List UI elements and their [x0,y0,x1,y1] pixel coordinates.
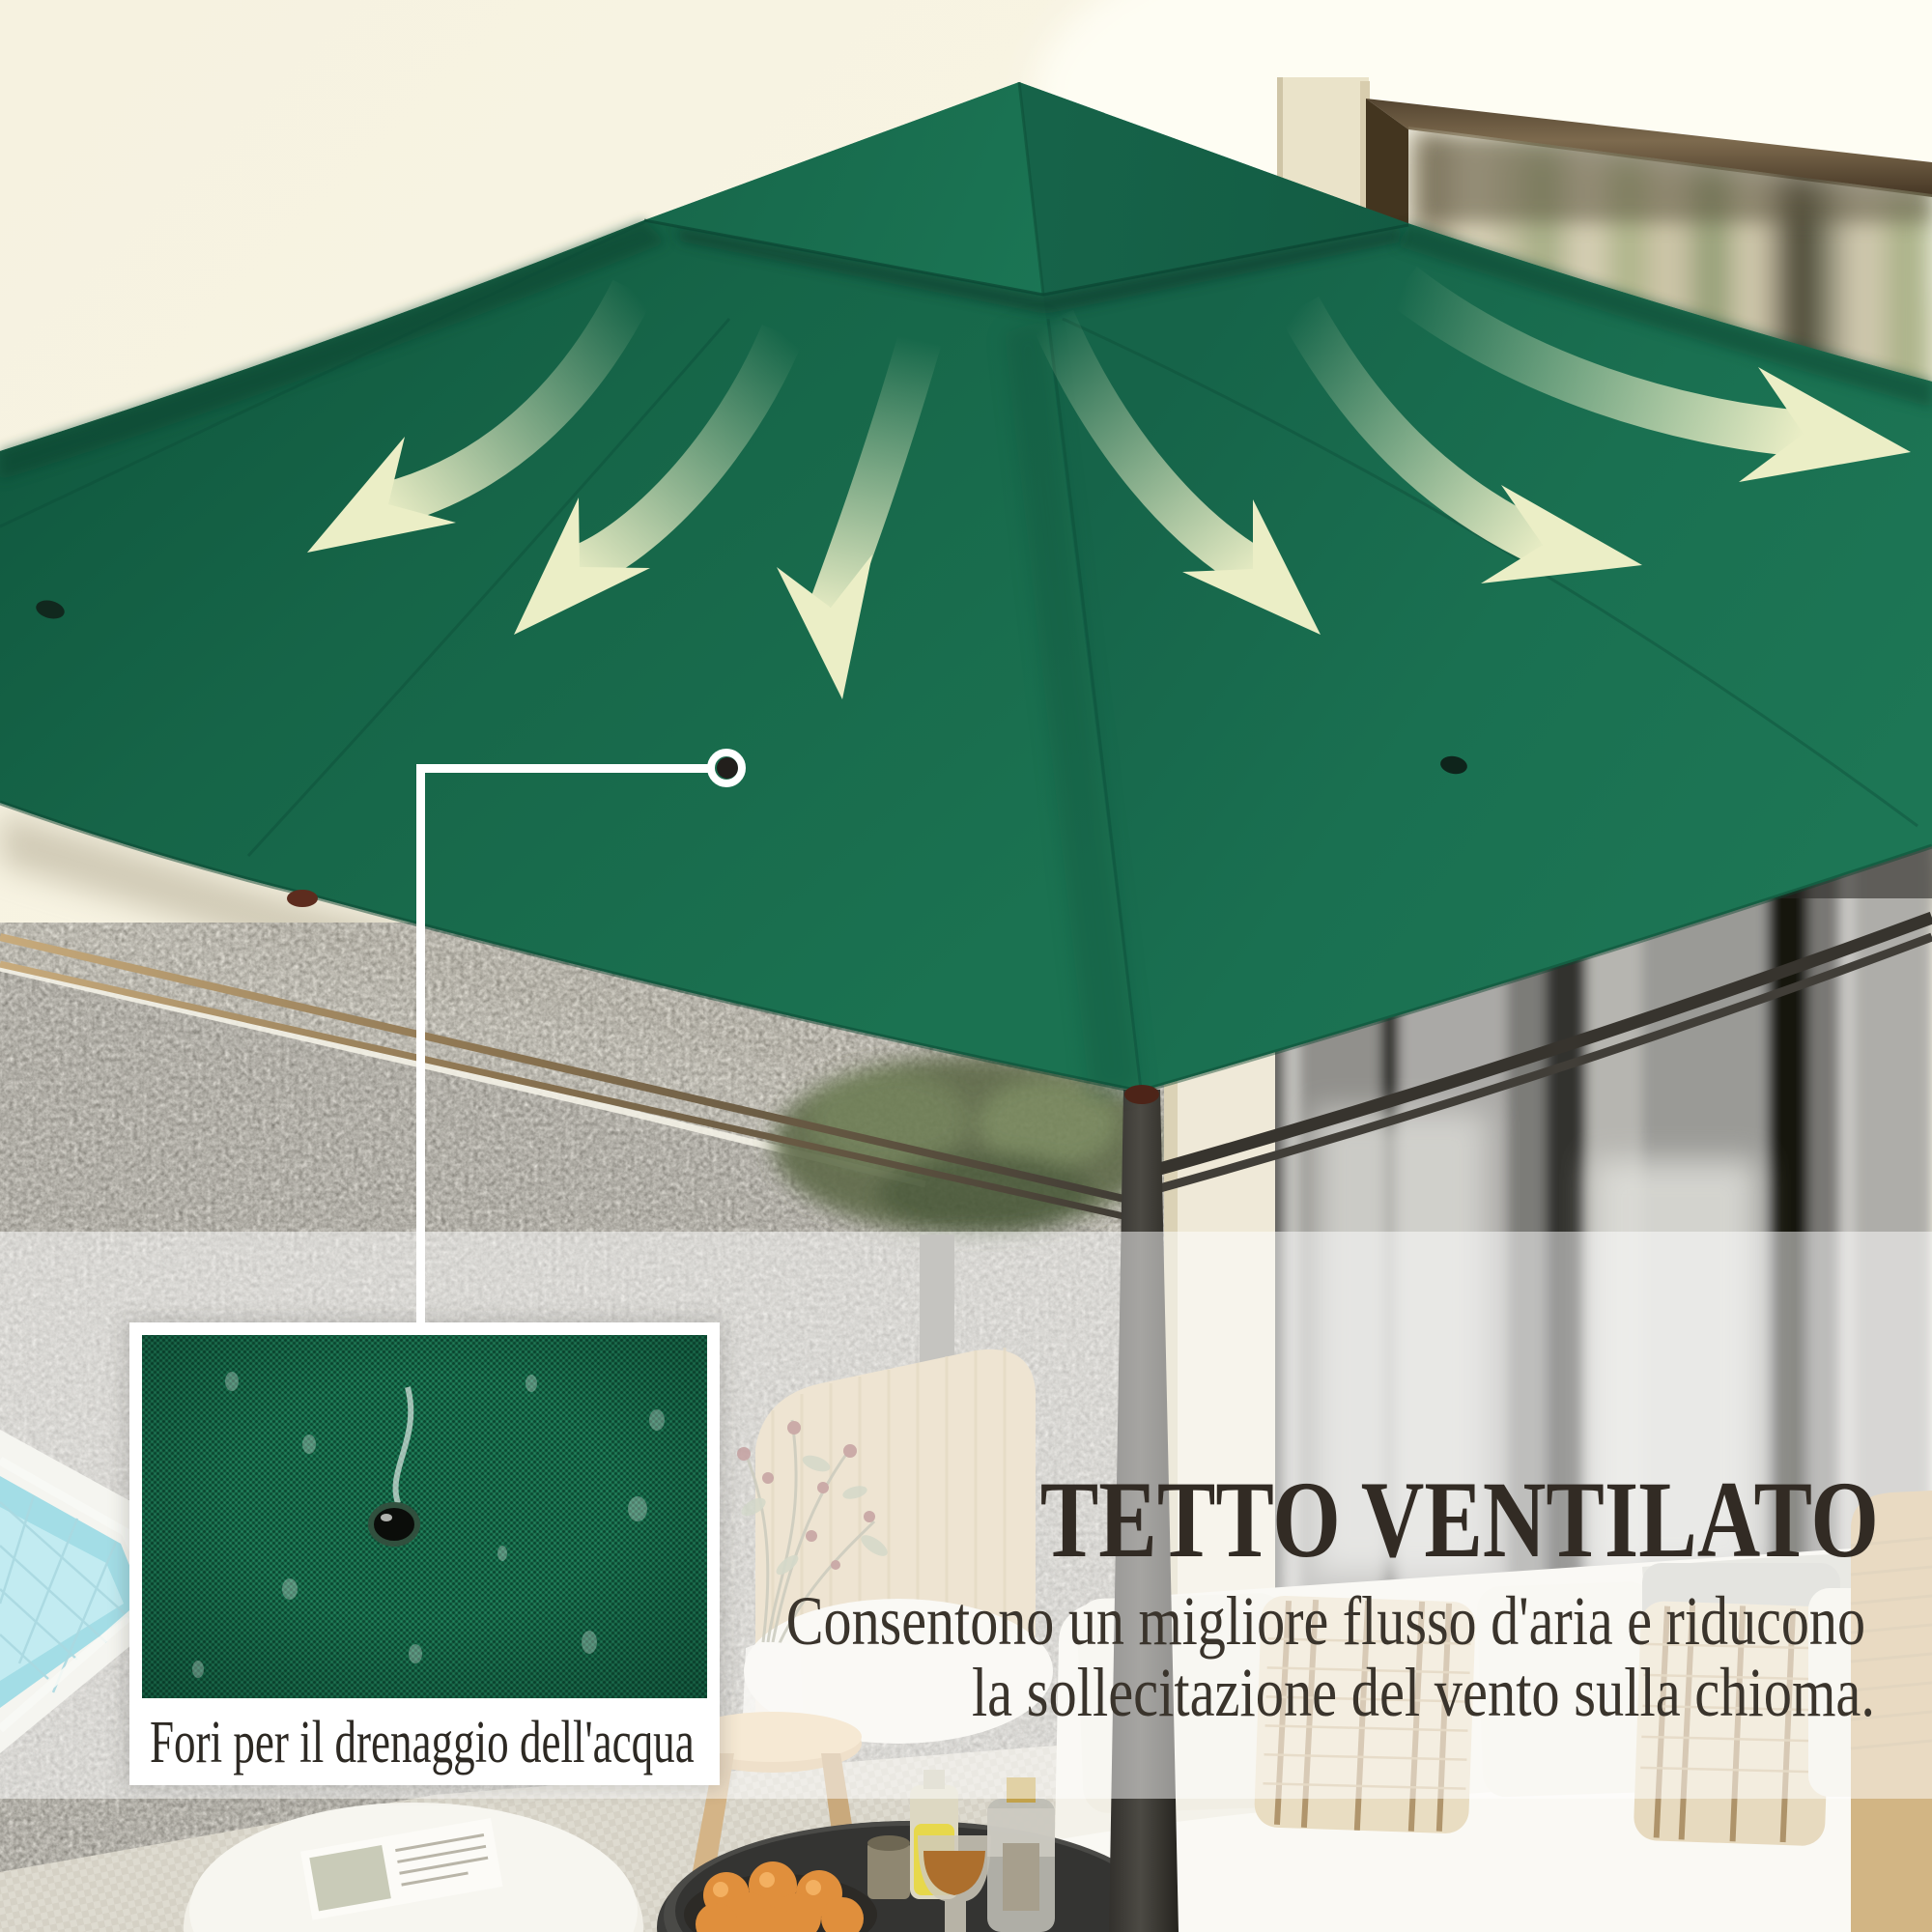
svg-text:Consentono un migliore flusso: Consentono un migliore flusso d'aria e r… [786,1583,1865,1660]
svg-text:Fori per il drenaggio dell'acq: Fori per il drenaggio dell'acqua [150,1709,695,1776]
svg-text:la sollecitazione del vento su: la sollecitazione del vento sulla chioma… [972,1655,1875,1731]
svg-text:TETTO VENTILATO: TETTO VENTILATO [1040,1461,1879,1581]
